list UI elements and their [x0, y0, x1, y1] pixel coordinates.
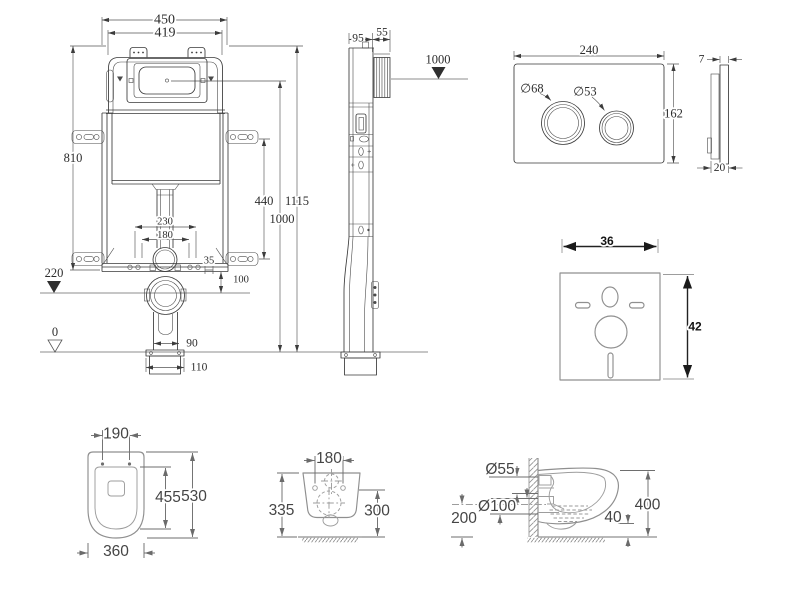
dim-frame-height: 810 [64, 151, 83, 165]
dim-offset-small: 35 [204, 256, 215, 267]
dim-depth-housing: 55 [376, 27, 388, 39]
bowl-rear-view: 180 335 300 [269, 450, 391, 542]
outlet-elbow [145, 277, 187, 375]
side-level-top-label: 1000 [426, 53, 451, 67]
dim-plate-thickness: 7 [699, 54, 705, 66]
level-marker-0-icon [48, 340, 62, 352]
dim-flange-width: 110 [191, 362, 208, 374]
dim-outlet-height: 200 [451, 510, 477, 527]
plate-side-profile [720, 65, 729, 164]
inspection-window [117, 59, 214, 103]
dim-rear-height-outer: 335 [269, 502, 295, 519]
dim-level-top: 1000 [270, 212, 295, 226]
bowl-outlet-stub [323, 515, 338, 526]
level-outlet-label: 220 [45, 266, 64, 280]
dim-bolt-span-inner: 180 [157, 230, 173, 241]
dim-frame-width-inner: 419 [155, 26, 176, 41]
mat-outline [560, 273, 660, 380]
side-outlet-elbow [341, 237, 380, 375]
toilet-installation-technical-drawing: 450 419 810 440 1000 1115 220 0 [0, 0, 800, 600]
level-floor-label: 0 [52, 325, 58, 339]
level-marker-1000-icon [432, 67, 446, 79]
frame-top-tabs [130, 48, 205, 58]
flush-plate-side: 7 20 [697, 54, 743, 175]
frame-tube-outer [109, 58, 223, 114]
dim-bolt-span-outer: 230 [157, 217, 173, 228]
dim-bowl-length: 530 [181, 488, 207, 505]
bowl-top-view: 190 455 530 360 [77, 426, 207, 561]
mat-cutouts [576, 287, 645, 378]
bowl-inner-outline [95, 467, 137, 529]
dim-bowl-depth: 400 [635, 497, 661, 514]
level-marker-220-icon [47, 281, 61, 293]
dim-plate-height: 162 [664, 107, 683, 121]
dim-total-thickness: 20 [714, 162, 726, 174]
bowl-flush-opening [108, 481, 125, 496]
frame-front-view: 450 419 810 440 1000 1115 220 0 [40, 13, 428, 375]
dim-small-button: ∅53 [573, 85, 596, 99]
plate-mount-frame [711, 74, 719, 159]
dim-total-height: 1115 [285, 194, 309, 208]
dim-bowl-width: 360 [103, 543, 129, 560]
frame-side-view: 95 55 1000 [341, 27, 468, 376]
sound-insulation-mat: 36 42 [560, 234, 702, 380]
leg-clamp [107, 70, 114, 102]
wall-hatch [529, 458, 538, 537]
cistern-tank [106, 110, 225, 190]
dim-bottom-gap: 40 [604, 509, 622, 526]
side-profile [349, 42, 390, 237]
dim-outlet-offset: 100 [233, 275, 249, 286]
bowl-side-view: Ø55 Ø100 200 400 40 [451, 458, 661, 548]
wall-hatch-block [374, 58, 390, 98]
small-flush-button [600, 111, 634, 145]
wall-brackets [72, 131, 258, 266]
dim-bowl-hole-span: 190 [103, 426, 129, 443]
dim-mat-width: 36 [600, 234, 614, 248]
plate-outline [514, 64, 664, 163]
ground-hatch [302, 538, 358, 543]
dim-inlet-diameter: Ø55 [485, 461, 514, 478]
tab-dots [133, 52, 202, 54]
floor-hatch [527, 538, 605, 543]
big-flush-button [542, 102, 585, 145]
dim-bowl-inner-length: 455 [155, 489, 181, 506]
dim-plate-width: 240 [580, 43, 599, 57]
dim-pipe-width: 90 [186, 338, 198, 350]
dim-outlet-diameter: Ø100 [478, 498, 516, 515]
flush-plate-front: 240 162 ∅68 ∅53 [514, 43, 683, 163]
dim-bracket-span: 440 [255, 194, 274, 208]
dim-rear-height-holes: 300 [364, 503, 390, 520]
dim-rear-hole-span: 180 [316, 450, 342, 467]
bowl-outer-outline [88, 452, 144, 538]
dim-mat-height: 42 [688, 320, 702, 334]
